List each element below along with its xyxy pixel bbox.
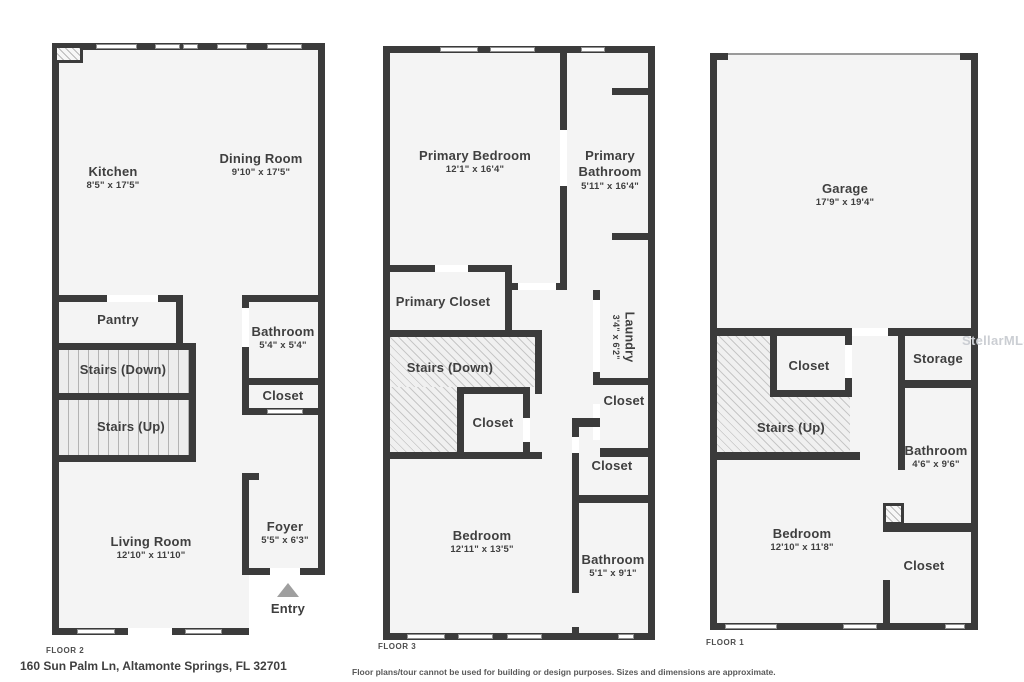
garage-door-line — [717, 53, 971, 55]
entry-arrow-icon — [277, 583, 299, 597]
wall — [457, 387, 530, 394]
window — [185, 629, 222, 634]
wall — [898, 336, 905, 380]
room-name: Bathroom — [582, 552, 645, 568]
floor3-plan: Primary Bedroom 12'1" x 16'4" Primary Ba… — [383, 46, 655, 640]
door-opening — [523, 418, 530, 442]
window — [77, 629, 115, 634]
floorplan-page: { "address": "160 Sun Palm Ln, Altamonte… — [0, 0, 1024, 682]
stellar-mls-watermark: StellarMLS — [962, 333, 1024, 348]
floor3-tag: FLOOR 3 — [378, 642, 416, 651]
room-label-stairs-down: Stairs (Down) — [407, 360, 493, 376]
water-heater-hatch — [883, 503, 904, 525]
room-name: Garage — [816, 181, 874, 197]
window — [267, 44, 302, 49]
door-opening — [107, 295, 158, 302]
floor1-tag: FLOOR 1 — [706, 638, 744, 647]
floor1-plan: Garage 17'9" x 19'4" Closet Stairs (Up) … — [710, 53, 978, 630]
room-name: Stairs (Up) — [757, 420, 825, 436]
wall — [710, 53, 728, 60]
window — [267, 409, 303, 414]
wall — [710, 328, 978, 336]
room-name: Stairs (Down) — [80, 362, 166, 378]
room-name: Bathroom — [252, 324, 315, 340]
room-name: Closet — [473, 415, 514, 431]
room-label-stairs-down: Stairs (Down) — [80, 362, 166, 378]
room-name: Primary Bathroom — [567, 148, 653, 181]
wall — [242, 473, 249, 575]
wall — [242, 378, 325, 385]
stairs-down-hatch — [390, 387, 457, 452]
room-label-closet-mid: Closet — [592, 458, 633, 474]
room-label-stairs-up: Stairs (Up) — [757, 420, 825, 436]
wall — [612, 233, 655, 240]
room-name: Living Room — [111, 534, 192, 550]
room-name: Primary Bedroom — [419, 148, 531, 164]
room-label-closet: Closet — [904, 558, 945, 574]
room-label-foyer: Foyer 5'5" x 6'3" — [261, 519, 308, 547]
room-label-bathroom: Bathroom 5'1" x 9'1" — [582, 552, 645, 580]
room-dims: 5'1" x 9'1" — [582, 568, 645, 580]
room-dims: 5'5" x 6'3" — [261, 535, 308, 547]
room-dims: 12'10" x 11'8" — [770, 542, 833, 554]
room-label-dining: Dining Room 9'10" x 17'5" — [219, 151, 302, 179]
door-opening — [128, 628, 172, 635]
wall — [770, 336, 777, 397]
room-label-closet-stairs: Closet — [789, 358, 830, 374]
wall — [883, 580, 890, 623]
room-name: Bedroom — [450, 528, 513, 544]
window — [96, 44, 137, 49]
room-dims: 12'11" x 13'5" — [450, 544, 513, 556]
fireplace-hatch — [54, 45, 83, 63]
room-name: Entry — [271, 601, 305, 617]
wall — [318, 43, 325, 575]
room-label-laundry: Laundry 3'4" x 6'2" — [610, 312, 637, 363]
wall — [189, 343, 196, 462]
door-opening — [572, 437, 579, 453]
window — [458, 634, 493, 639]
room-label-storage: Storage — [913, 351, 963, 367]
wall — [572, 418, 579, 503]
room-dims: 5'4" x 5'4" — [252, 340, 315, 352]
room-label-kitchen: Kitchen 8'5" x 17'5" — [87, 164, 140, 192]
window — [183, 44, 198, 49]
window — [440, 47, 478, 52]
floor2-plan: Kitchen 8'5" x 17'5" Dining Room 9'10" x… — [52, 43, 325, 635]
wall — [770, 390, 852, 397]
room-name: Closet — [263, 388, 304, 404]
room-label-pantry: Pantry — [97, 312, 139, 328]
door-opening — [518, 283, 556, 290]
room-dims: 17'9" x 19'4" — [816, 197, 874, 209]
room-name: Foyer — [261, 519, 308, 535]
window — [843, 624, 877, 629]
room-dims: 5'11" x 16'4" — [567, 180, 653, 192]
wall — [457, 387, 464, 459]
wall — [383, 46, 390, 640]
window — [507, 634, 542, 639]
room-label-bathroom: Bathroom 4'6" x 9'6" — [905, 443, 968, 471]
room-name: Bedroom — [770, 526, 833, 542]
wall — [572, 495, 579, 593]
room-label-living: Living Room 12'10" x 11'10" — [111, 534, 192, 562]
room-dims: 12'1" x 16'4" — [419, 164, 531, 176]
door-opening — [593, 300, 600, 372]
room-label-closet: Closet — [263, 388, 304, 404]
room-name: Primary Closet — [396, 294, 491, 310]
room-name: Storage — [913, 351, 963, 367]
room-name: Stairs (Up) — [97, 419, 165, 435]
window — [407, 634, 445, 639]
room-label-primary-bedroom: Primary Bedroom 12'1" x 16'4" — [419, 148, 531, 176]
room-label-bedroom: Bedroom 12'10" x 11'8" — [770, 526, 833, 554]
window — [945, 624, 965, 629]
wall — [593, 378, 655, 385]
wall — [52, 393, 196, 400]
room-label-stairs-up: Stairs (Up) — [97, 419, 165, 435]
wall — [883, 523, 978, 532]
window — [581, 47, 605, 52]
disclaimer-text: Floor plans/tour cannot be used for buil… — [352, 667, 776, 677]
wall — [52, 455, 196, 462]
wall — [600, 448, 655, 457]
window — [618, 634, 634, 639]
room-dims: 9'10" x 17'5" — [219, 167, 302, 179]
wall — [612, 88, 655, 95]
room-name: Laundry — [621, 312, 637, 363]
room-label-bedroom: Bedroom 12'11" x 13'5" — [450, 528, 513, 556]
room-name: Bathroom — [905, 443, 968, 459]
room-dims: 4'6" x 9'6" — [905, 459, 968, 471]
room-label-garage: Garage 17'9" x 19'4" — [816, 181, 874, 209]
entry-label: Entry — [271, 601, 305, 617]
wall — [898, 380, 978, 388]
room-name: Closet — [789, 358, 830, 374]
wall — [383, 452, 542, 459]
window — [155, 44, 180, 49]
wall — [52, 343, 196, 350]
room-dims: 3'4" x 6'2" — [610, 312, 621, 363]
room-label-primary-closet: Primary Closet — [396, 294, 491, 310]
window — [725, 624, 777, 629]
room-name: Closet — [592, 458, 633, 474]
wall — [176, 295, 183, 350]
room-label-bathroom: Bathroom 5'4" x 5'4" — [252, 324, 315, 352]
room-label-closet-center: Closet — [473, 415, 514, 431]
wall — [572, 495, 655, 503]
floor2-tag: FLOOR 2 — [46, 646, 84, 655]
room-dims: 12'10" x 11'10" — [111, 550, 192, 562]
door-opening — [845, 345, 852, 378]
door-opening — [852, 328, 888, 336]
room-name: Stairs (Down) — [407, 360, 493, 376]
wall — [535, 330, 542, 394]
property-address: 160 Sun Palm Ln, Altamonte Springs, FL 3… — [20, 659, 287, 673]
window — [490, 47, 535, 52]
wall — [572, 627, 579, 640]
room-name: Closet — [604, 393, 645, 409]
room-label-primary-bathroom: Primary Bathroom 5'11" x 16'4" — [567, 148, 653, 192]
room-name: Dining Room — [219, 151, 302, 167]
wall — [710, 452, 860, 460]
wall — [242, 295, 325, 302]
wall — [52, 43, 59, 635]
room-dims: 8'5" x 17'5" — [87, 180, 140, 192]
room-name: Kitchen — [87, 164, 140, 180]
wall — [648, 46, 655, 640]
entry-door-opening — [270, 568, 300, 575]
room-name: Pantry — [97, 312, 139, 328]
wall — [710, 53, 717, 630]
room-label-closet-right: Closet — [604, 393, 645, 409]
wall — [505, 265, 512, 337]
door-opening — [242, 308, 249, 347]
door-opening — [560, 130, 567, 186]
wall — [383, 330, 542, 337]
window — [217, 44, 247, 49]
door-opening — [435, 265, 468, 272]
wall — [960, 53, 978, 60]
room-name: Closet — [904, 558, 945, 574]
